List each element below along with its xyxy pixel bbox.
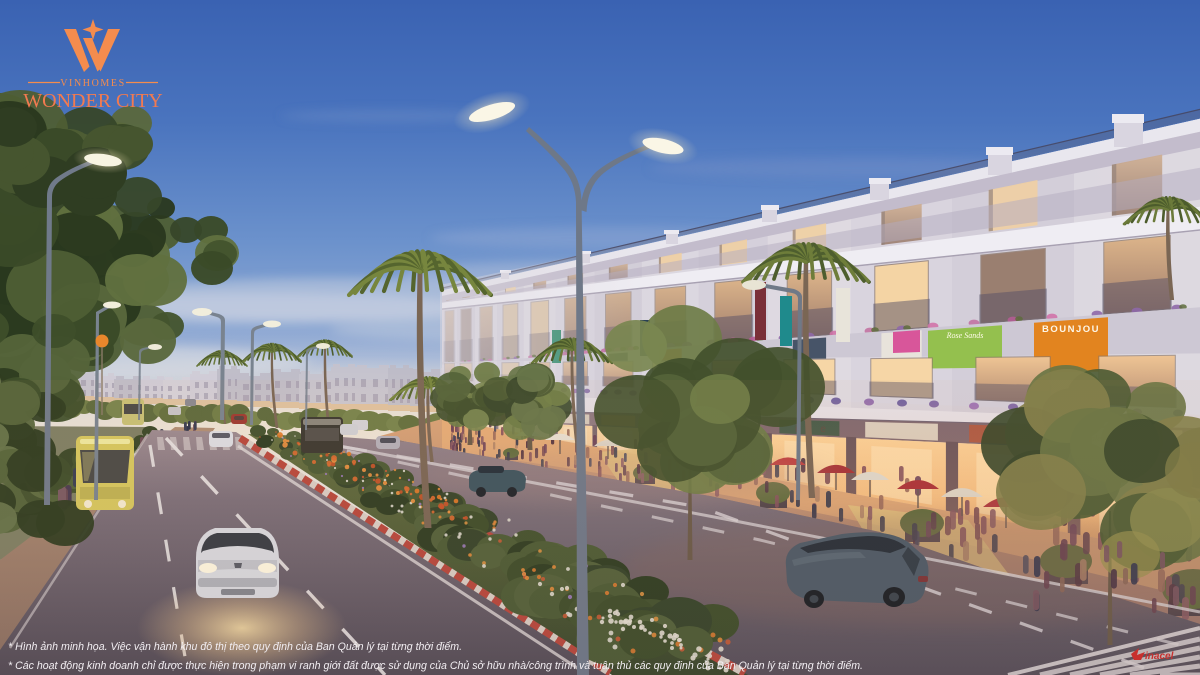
- svg-text:inacel: inacel: [1145, 651, 1174, 662]
- svg-text:VINHOMES: VINHOMES: [60, 78, 126, 89]
- svg-text:* Hình ảnh minh họa. Việc vận: * Hình ảnh minh họa. Việc vận hành khu đ…: [8, 641, 462, 653]
- svg-text:* Các hoạt động kinh doanh chỉ: * Các hoạt động kinh doanh chỉ được thực…: [8, 660, 863, 672]
- svg-text:Rose Sands: Rose Sands: [946, 331, 984, 340]
- svg-text:BOUNJOU: BOUNJOU: [1042, 324, 1100, 335]
- svg-text:WONDER CITY: WONDER CITY: [23, 90, 162, 112]
